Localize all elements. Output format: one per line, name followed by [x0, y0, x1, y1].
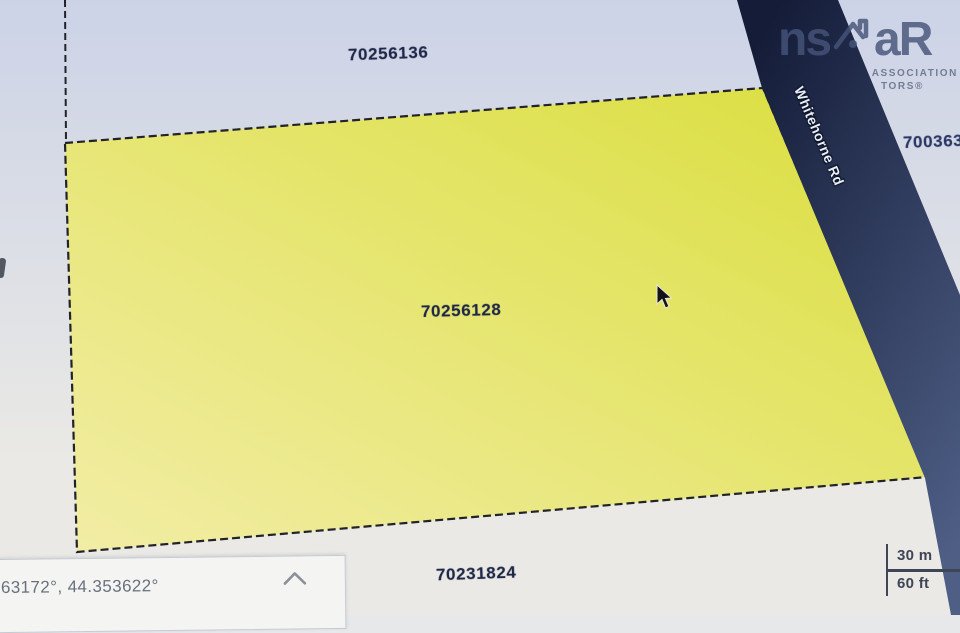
parcel-label-east-clipped: 700363 — [903, 131, 960, 153]
logo-text-left: ns — [778, 16, 830, 64]
nsar-logo: ns aR ASSOCIATION TORS® — [778, 14, 958, 93]
logo-tagline-line2: TORS® — [778, 80, 924, 93]
logo-text-right: aR — [874, 16, 931, 64]
cursor-arrow-icon — [655, 284, 677, 317]
coordinates-readout: 63172°, 44.353622° — [1, 576, 159, 598]
chevron-up-icon — [280, 575, 310, 590]
scale-bar: 30 m 60 ft — [880, 542, 960, 604]
status-panel: 63172°, 44.353622° — [0, 555, 346, 633]
scale-bar-line — [886, 569, 960, 572]
scale-metric-label: 30 m — [897, 547, 932, 564]
scale-imperial-label: 60 ft — [897, 575, 929, 592]
parcel-label-selected: 70256128 — [421, 300, 502, 322]
expand-panel-button[interactable] — [277, 564, 313, 594]
parcel-label-north: 70256136 — [348, 43, 429, 66]
parcel-label-south: 70231824 — [436, 563, 517, 586]
map-canvas[interactable]: 70256136 70256128 70231824 700363 Whiteh… — [0, 0, 960, 615]
logo-tagline-line1: ASSOCIATION — [778, 67, 958, 80]
house-icon — [833, 14, 873, 62]
